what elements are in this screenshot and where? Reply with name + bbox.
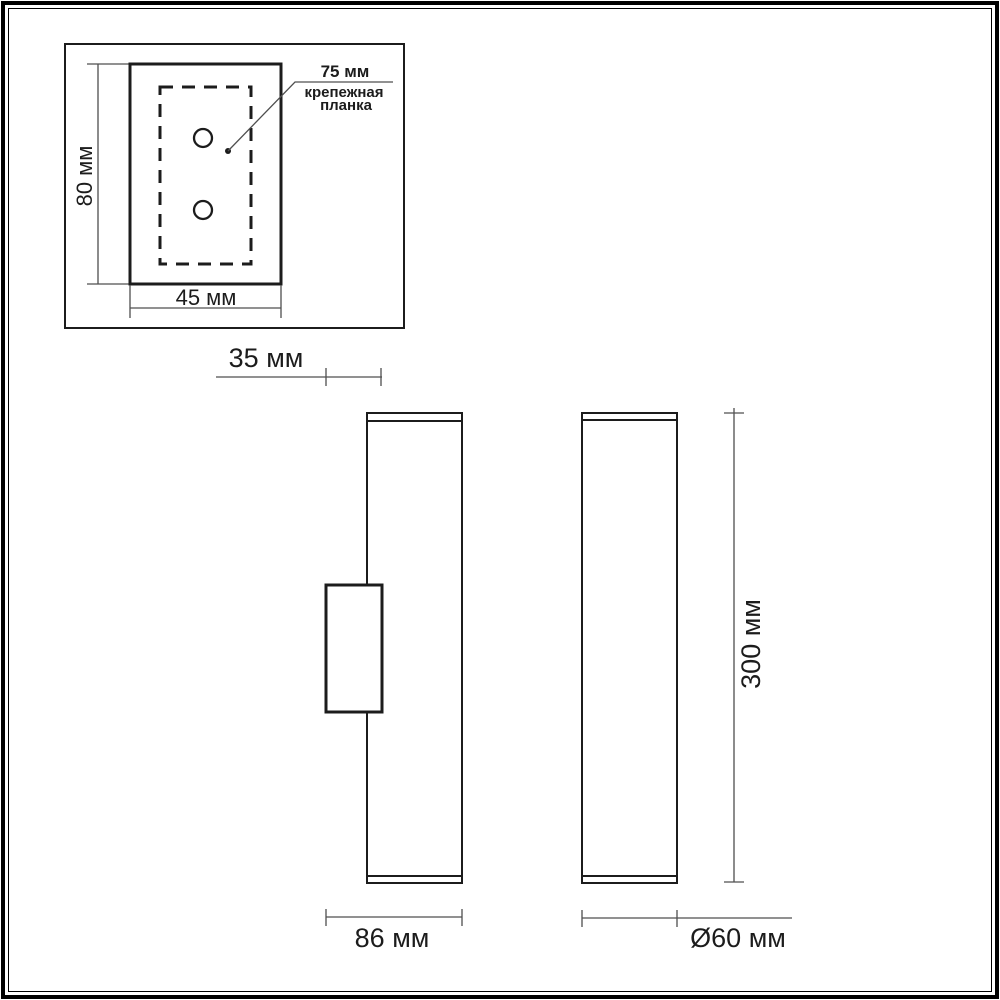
bracket-depth-dimension: 35 мм	[216, 343, 382, 386]
bracket-depth-label: 35 мм	[229, 343, 304, 373]
technical-drawing-page: 80 мм 75 мм крепежная планка 45 мм	[0, 0, 1000, 1000]
screw-hole-top	[194, 129, 212, 147]
plate-spacing-label: 75 мм	[321, 62, 370, 81]
lamp-dimension-drawing: 80 мм 75 мм крепежная планка 45 мм	[0, 0, 1000, 1000]
overall-depth-label: 86 мм	[355, 923, 430, 953]
lamp-diameter-label: Ø60 мм	[690, 923, 786, 953]
lamp-side-view: 86 мм	[326, 413, 462, 953]
plate-height-label: 80 мм	[72, 146, 97, 207]
callout-text-line2: планка	[320, 97, 372, 114]
mounting-plate-inset: 80 мм 75 мм крепежная планка 45 мм	[65, 44, 404, 328]
wall-bracket	[326, 585, 382, 712]
plate-width-label: 45 мм	[176, 285, 237, 310]
mounting-plate-outline	[130, 64, 281, 284]
lamp-height-label: 300 мм	[736, 599, 766, 689]
lamp-front-view: 300 мм Ø60 мм	[582, 408, 792, 953]
front-view-body	[582, 413, 677, 883]
screw-hole-bottom	[194, 201, 212, 219]
